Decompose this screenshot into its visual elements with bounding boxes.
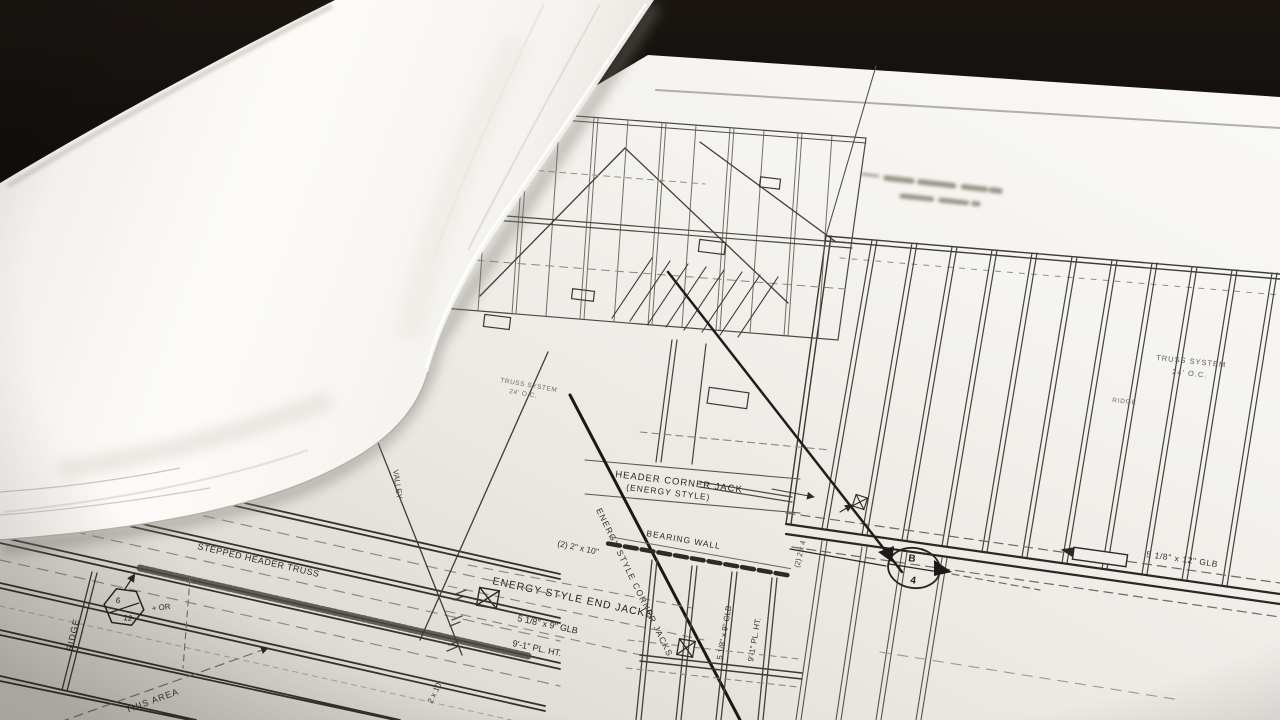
blueprint-photo: TRUSS SYSTEM 24' O.C. RIDGE 5 1/8" x 12"…: [0, 0, 1280, 720]
blueprint-photo-scene: TRUSS SYSTEM 24' O.C. RIDGE 5 1/8" x 12"…: [0, 0, 1280, 720]
vignette-overlay: [0, 0, 1280, 720]
